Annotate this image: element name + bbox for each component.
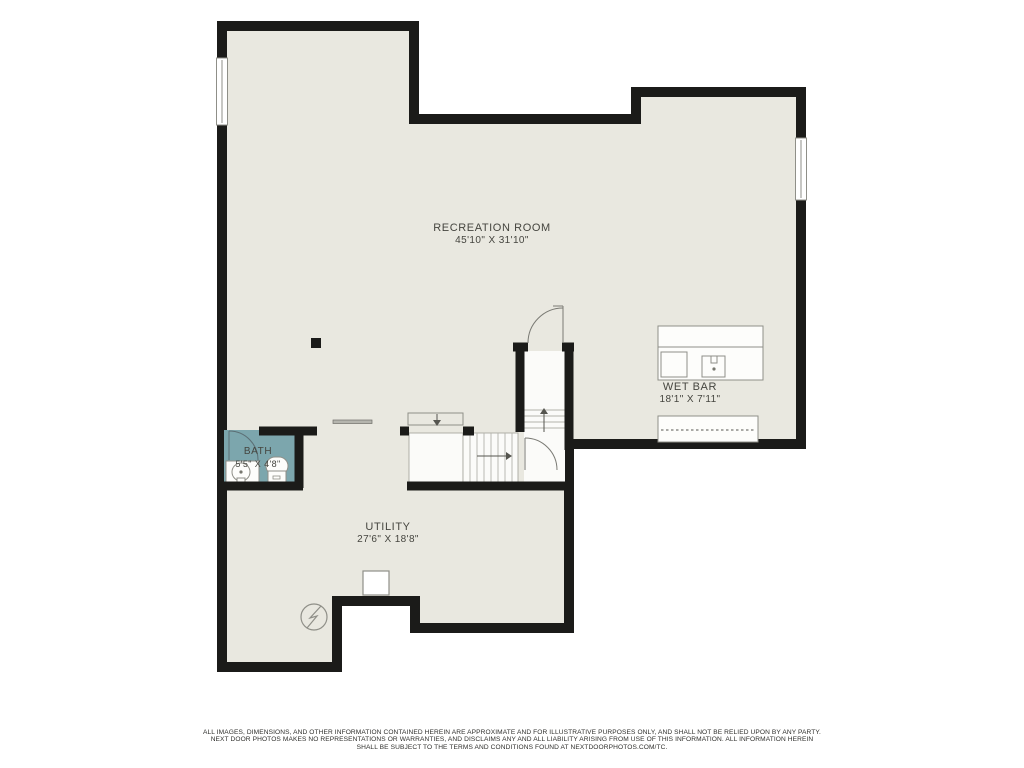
room-name: UTILITY — [357, 521, 419, 533]
wet-bar-cabinet — [661, 352, 687, 377]
room-name: WET BAR — [660, 381, 721, 393]
room-name: BATH — [235, 446, 280, 458]
disclaimer-line: NEXT DOOR PHOTOS MAKES NO REPRESENTATION… — [62, 736, 962, 743]
room-dimensions: 5'5" X 4'8" — [235, 459, 280, 470]
furnace-icon — [363, 571, 389, 595]
wet-bar-counter — [658, 326, 763, 380]
room-dimensions: 27'6" X 18'8" — [357, 534, 419, 545]
room-name: RECREATION ROOM — [433, 222, 551, 234]
stair-landing — [409, 433, 463, 482]
window-icon — [217, 58, 228, 125]
floor-plan-drawing — [0, 0, 1024, 768]
room-label-utility: UTILITY 27'6" X 18'8" — [357, 521, 419, 545]
room-dimensions: 18'1" X 7'11" — [660, 394, 721, 405]
wet-bar-sink-icon — [702, 356, 725, 377]
support-post — [311, 338, 321, 348]
disclaimer-line: ALL IMAGES, DIMENSIONS, AND OTHER INFORM… — [62, 729, 962, 736]
disclaimer-text: ALL IMAGES, DIMENSIONS, AND OTHER INFORM… — [62, 729, 962, 751]
wet-bar-island — [658, 416, 758, 442]
room-label-bath: BATH 5'5" X 4'8" — [235, 446, 280, 470]
opening-header — [333, 420, 372, 424]
disclaimer-line: SHALL BE SUBJECT TO THE TERMS AND CONDIT… — [62, 744, 962, 751]
room-dimensions: 45'10" X 31'10" — [433, 235, 551, 246]
window-icon — [796, 138, 807, 200]
room-label-recreation: RECREATION ROOM 45'10" X 31'10" — [433, 222, 551, 246]
room-label-wet-bar: WET BAR 18'1" X 7'11" — [660, 381, 721, 405]
floor-plan-page: RECREATION ROOM 45'10" X 31'10" WET BAR … — [0, 0, 1024, 768]
